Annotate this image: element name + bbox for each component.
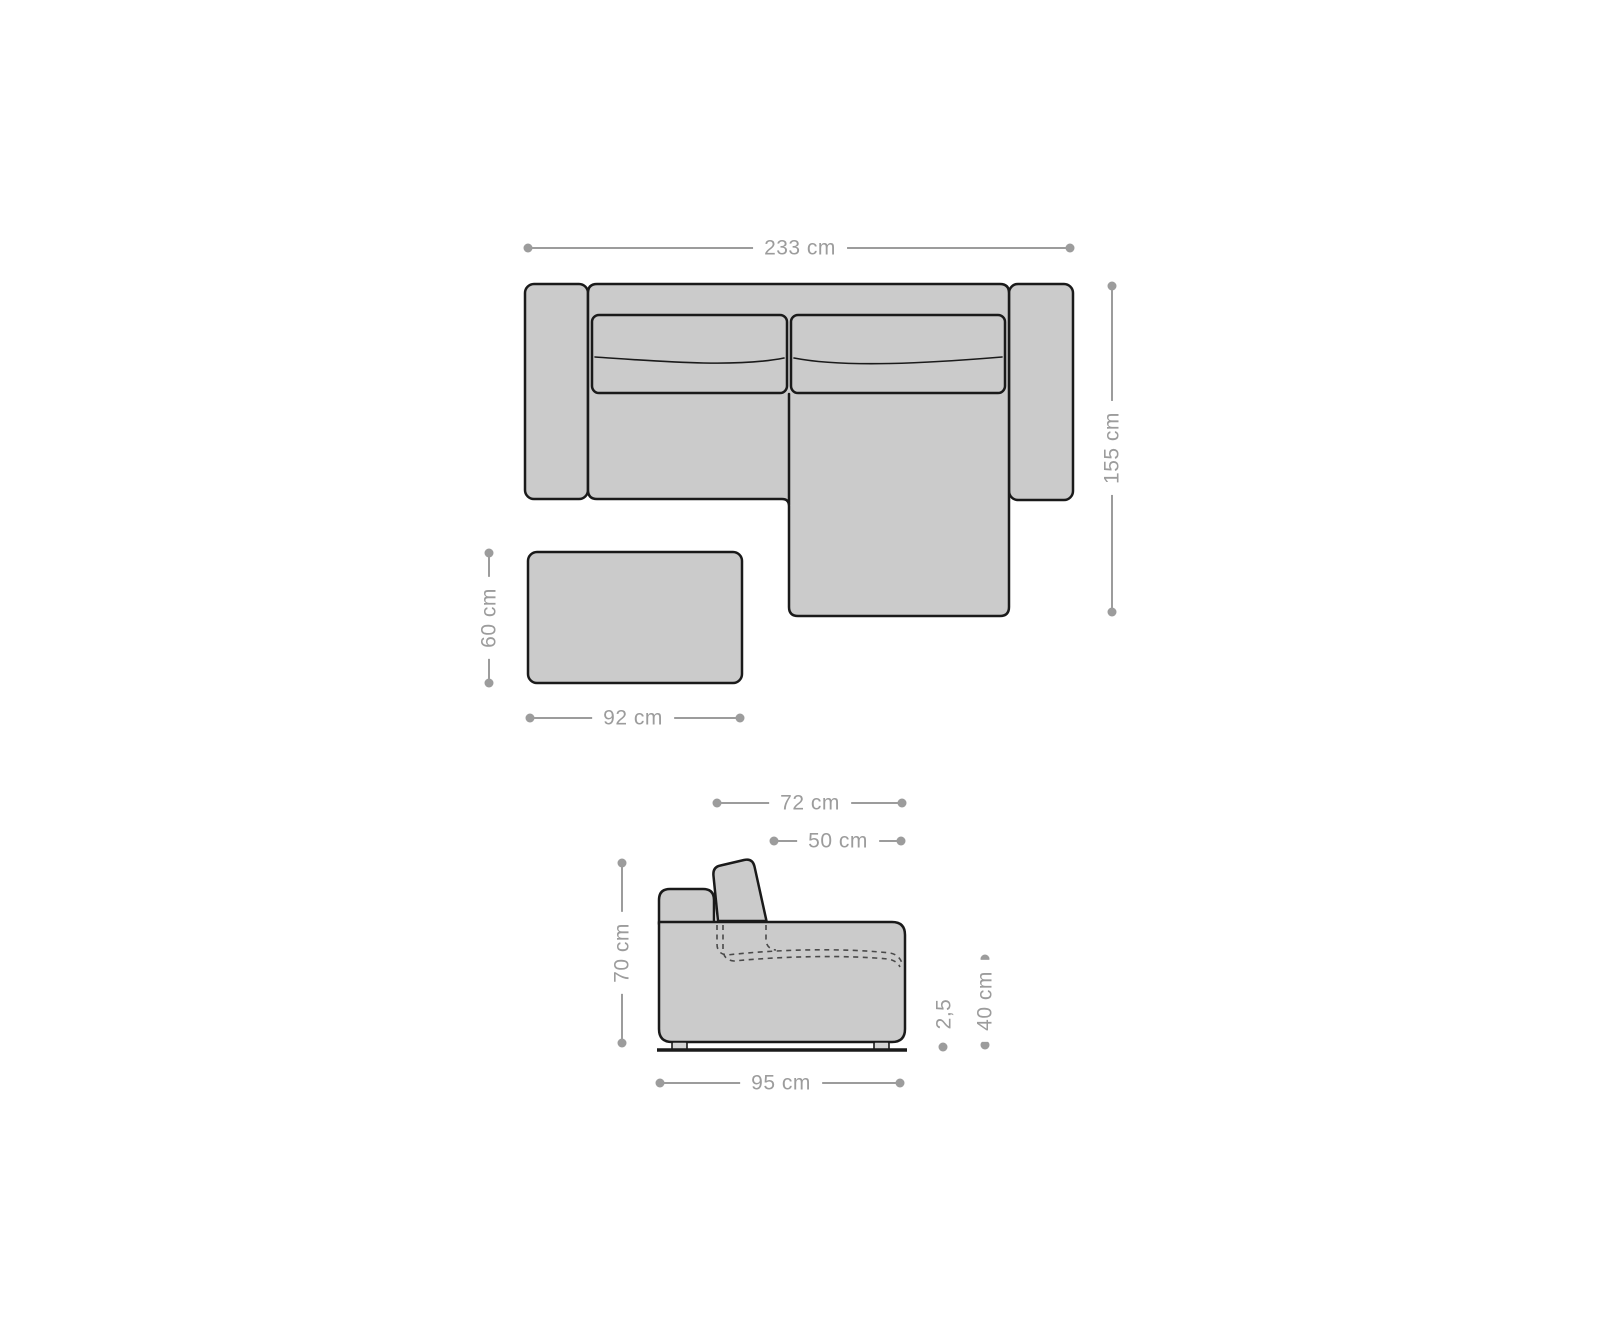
dim-dot <box>1108 282 1117 291</box>
sofa-depth-label: 155 cm <box>1100 401 1125 495</box>
dim-dot <box>485 679 494 688</box>
dim-dot <box>1108 608 1117 617</box>
sofa-width-label: 233 cm <box>753 236 847 261</box>
right-armrest <box>1009 284 1073 500</box>
seat-height-label: 40 cm <box>973 960 998 1042</box>
sofa-top-view <box>485 244 1117 723</box>
dim-dot <box>981 1041 990 1050</box>
side-body <box>659 922 905 1042</box>
ottoman-depth-label: 60 cm <box>477 577 502 659</box>
dim-dot <box>485 549 494 558</box>
diagram-drawing <box>0 0 1600 1333</box>
ottoman-width-label: 92 cm <box>592 706 674 731</box>
dim-dot <box>770 837 779 846</box>
total-height-label: 70 cm <box>610 912 635 994</box>
dim-dot <box>524 244 533 253</box>
ottoman <box>528 552 742 683</box>
dim-dot <box>1066 244 1075 253</box>
dimension-diagram: 233 cm 155 cm 60 cm 92 cm 72 cm 50 cm 70… <box>0 0 1600 1333</box>
dim-dot <box>526 714 535 723</box>
back-cushion-right <box>791 315 1005 393</box>
dim-dot <box>713 799 722 808</box>
dim-dot <box>656 1079 665 1088</box>
dim-dot <box>898 799 907 808</box>
foot-height-label: 2,5 <box>932 988 957 1041</box>
dim-dot <box>618 1039 627 1048</box>
dim-dot <box>897 837 906 846</box>
dim-dot-foot-height <box>939 1043 948 1052</box>
side-back-cushion <box>713 860 766 921</box>
dim-dot <box>736 714 745 723</box>
dim-dot <box>896 1079 905 1088</box>
total-depth-label: 95 cm <box>740 1071 822 1096</box>
dim-dot <box>618 859 627 868</box>
seat-depth-label: 50 cm <box>797 829 879 854</box>
left-armrest <box>525 284 588 499</box>
backrest-depth-label: 72 cm <box>769 791 851 816</box>
back-cushion-left <box>592 315 787 393</box>
side-backrest <box>659 889 714 924</box>
